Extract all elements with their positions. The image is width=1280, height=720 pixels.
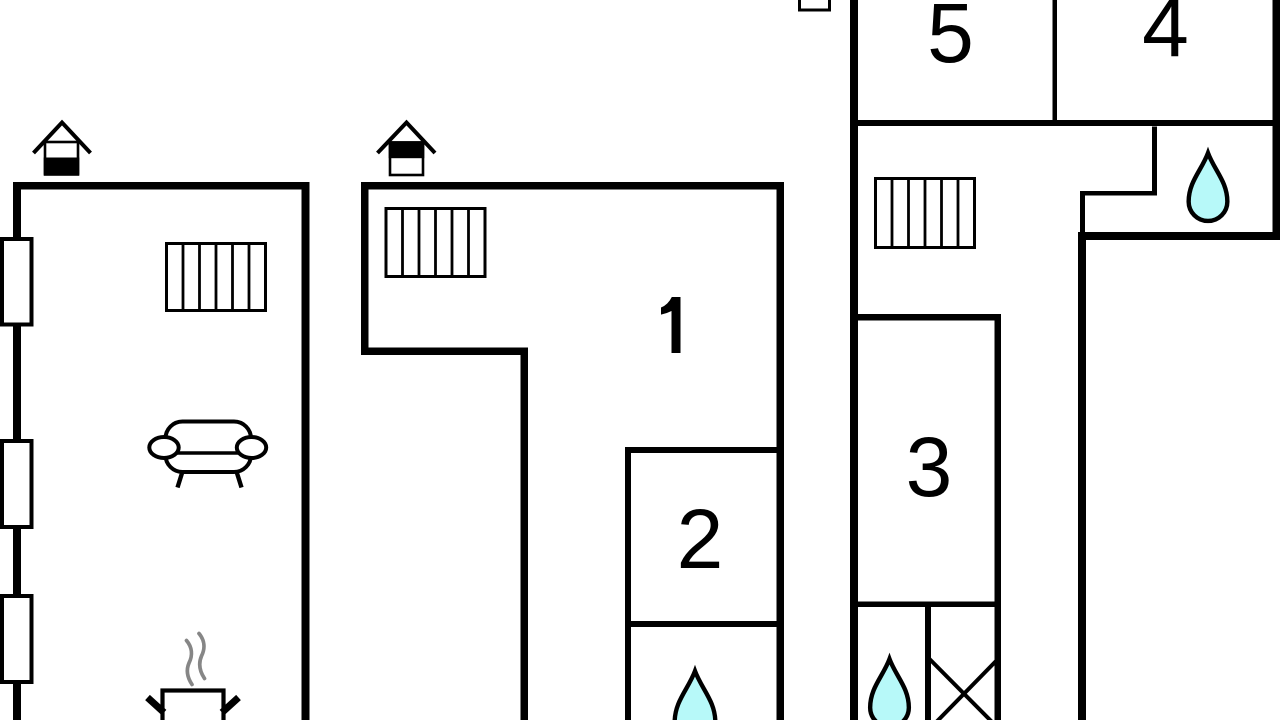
svg-text:2: 2 <box>677 492 724 586</box>
svg-text:4: 4 <box>1142 0 1189 74</box>
svg-text:5: 5 <box>927 0 974 80</box>
svg-text:3: 3 <box>906 420 953 514</box>
